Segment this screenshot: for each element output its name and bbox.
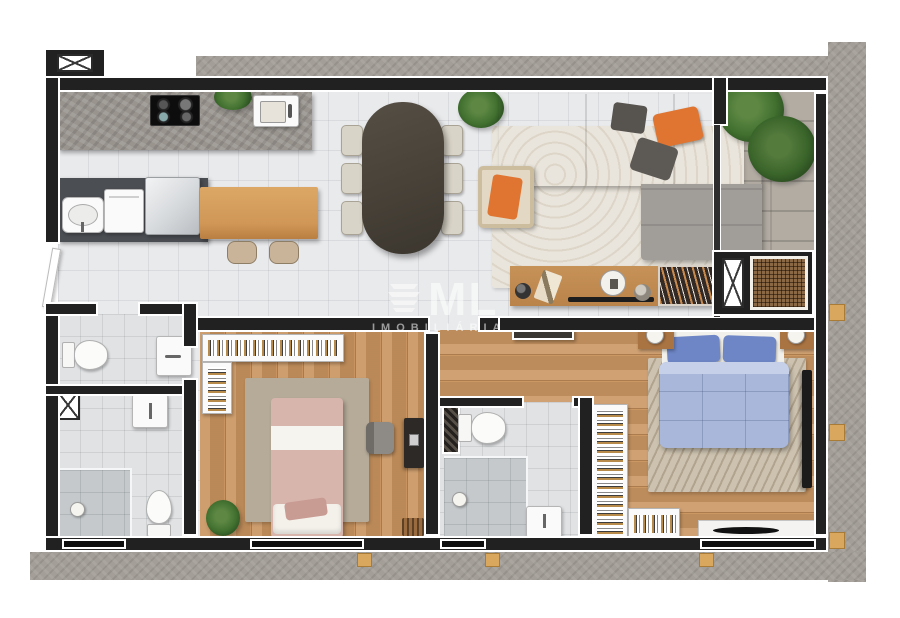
vent-grille [750,256,808,310]
closet-top [202,334,344,362]
washing-machine [104,189,144,233]
wall-bathM-right [578,396,594,536]
toilet-tank [458,414,472,442]
bed-duvet [659,362,789,448]
wall-bathAB-divider [44,384,196,396]
armchair-cushion-orange [487,174,523,220]
window-opening [250,539,364,549]
balcony-palm [748,116,816,182]
bar-stool [227,241,257,264]
magazine-rack [402,518,424,536]
washer-lid-line [109,196,139,198]
hanging-clothes [208,340,338,356]
dining-table [362,102,444,254]
exterior-concrete-bottom [30,552,866,580]
desk [404,418,424,468]
bedroom1-plant [206,500,240,536]
office-chair [366,422,394,454]
duvet-fold [659,362,789,374]
toilet [458,412,506,444]
watermark-brand: ML [428,272,498,326]
decor-mortar [515,283,531,299]
dining-chair [341,163,363,194]
shower-head [70,502,85,517]
wall-bedroom1-right [424,332,440,536]
pillow-blue [666,335,720,365]
dining-chair [441,163,463,194]
hanging-clothes [208,367,226,411]
small-sink [132,394,168,428]
breakfast-bar [200,187,318,239]
window-opening [700,539,816,549]
wall-left-upper [44,76,60,244]
cooktop [150,95,200,126]
wall-bathM-top-a [438,396,524,408]
fridge [145,177,200,235]
sink-basin [260,101,286,123]
sofa-chaise [641,184,762,260]
toilet-bowl [74,340,108,370]
dining-chair [341,201,363,235]
wall-top [44,76,828,92]
decor-wall-clock [600,270,626,296]
wall-baths-right-b [182,378,198,536]
building-icon [386,280,422,314]
decor-vase [634,284,651,301]
facade-bracket [485,553,500,567]
bench-object [713,527,779,534]
shaft-box [57,54,93,72]
hanging-clothes [634,515,676,533]
watermark-subtitle: IMOBILIÁRIA [372,322,506,334]
facade-bracket [357,553,372,567]
closet-side [202,362,232,414]
small-sink-faucet [149,403,152,419]
toilet-bowl [146,490,172,524]
wall-bathA-top-a [44,302,98,316]
single-bed [271,398,343,538]
kitchen-sink [253,95,299,127]
decor-art-frame [658,265,715,306]
shower-area [58,468,132,538]
bathroom-sink-faucet [543,514,546,528]
bar-stool [269,241,299,264]
wall-bedroom2-top [498,316,828,332]
window-opening [440,539,486,549]
toilet-bowl [471,412,506,444]
dining-chair [341,125,363,156]
wall-left-lower [44,310,60,552]
exterior-concrete-top [196,56,828,78]
sink-faucet [288,104,292,118]
bed-white-band [271,426,343,450]
dining-chair [441,125,463,156]
desk-laptop [409,434,419,446]
shower-head [452,492,467,507]
wardrobe-side [590,404,628,538]
toilet [146,490,172,538]
hanging-clothes [597,410,623,534]
clock-face-detail [610,279,618,289]
shaft-box [722,258,744,308]
vanity-faucet [165,355,181,358]
facade-bracket [829,532,845,549]
facade-bracket [829,304,845,321]
toilet [62,340,108,370]
facade-bracket [699,553,714,567]
wall-right [814,92,828,536]
dining-chair [441,201,463,235]
laundry-tub [62,197,104,233]
window-opening [62,539,126,549]
pillow-blue [723,335,777,364]
sofa-pillow-dark [610,102,648,134]
living-plant [458,88,504,128]
wall-balcony-left-stub [712,76,728,126]
wardrobe-bottom [628,508,680,538]
facade-bracket [829,424,845,441]
tub-faucet [81,222,84,232]
floor-plan-canvas: ML IMOBILIÁRIA [0,0,900,618]
bathroom-sink [526,506,562,538]
wall-tv [802,370,812,488]
armchair [478,166,534,228]
